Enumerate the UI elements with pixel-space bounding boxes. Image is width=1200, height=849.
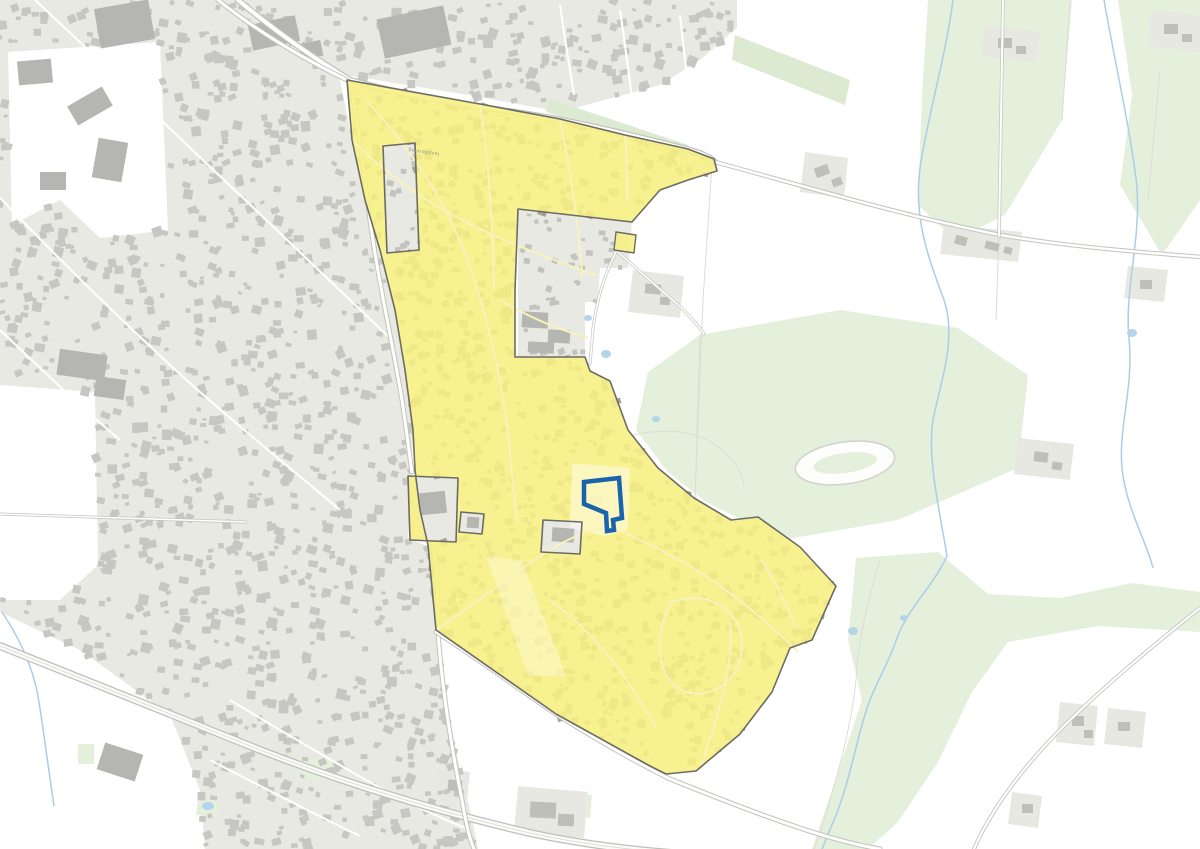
- pond: [900, 615, 908, 621]
- large-building: [40, 172, 66, 190]
- farm-building: [1033, 451, 1048, 463]
- farm-building: [998, 38, 1012, 48]
- farm-building: [1022, 804, 1033, 813]
- pond: [652, 416, 660, 422]
- large-building: [467, 517, 480, 529]
- pond: [1127, 329, 1137, 337]
- farm-building: [530, 801, 557, 818]
- farm-building: [1016, 46, 1026, 54]
- large-building: [17, 59, 53, 86]
- farm-building: [558, 814, 575, 827]
- farm-building: [1140, 280, 1152, 289]
- farm-building: [1118, 722, 1130, 731]
- pond: [848, 627, 858, 635]
- pond: [584, 315, 592, 321]
- pond: [202, 802, 214, 810]
- farm-building: [1084, 730, 1093, 738]
- large-building: [528, 341, 555, 353]
- map-canvas: Smaragdvej: [0, 0, 1200, 849]
- large-building: [419, 491, 447, 516]
- farm-building: [1182, 34, 1192, 42]
- farm-building: [1051, 461, 1062, 470]
- large-building: [94, 376, 126, 400]
- pond: [601, 350, 611, 358]
- map-viewport[interactable]: Smaragdvej: [0, 0, 1200, 849]
- plan-zone-sliver[interactable]: [614, 232, 636, 253]
- large-building: [552, 527, 575, 543]
- farm-building: [1164, 24, 1178, 34]
